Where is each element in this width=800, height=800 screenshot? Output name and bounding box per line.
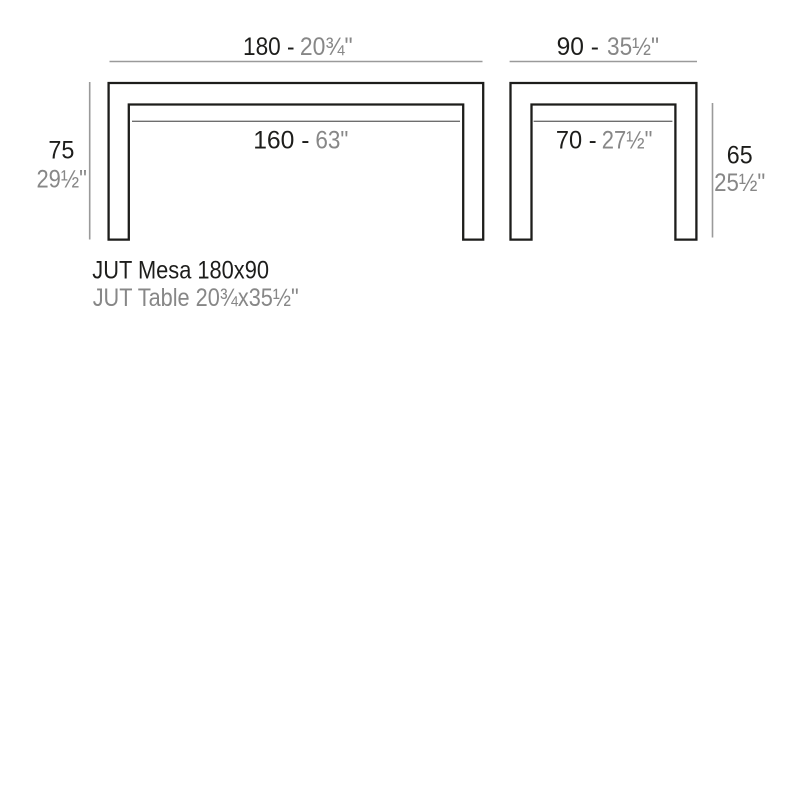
svg-text:160 -: 160 -: [253, 126, 309, 154]
svg-text:65: 65: [727, 141, 753, 169]
svg-text:27½": 27½": [602, 126, 653, 154]
svg-text:29½": 29½": [37, 165, 87, 193]
svg-text:75: 75: [48, 137, 74, 165]
svg-text:180 -: 180 -: [243, 33, 295, 61]
svg-text:63": 63": [315, 126, 348, 154]
svg-text:JUT Table 20¾x35½": JUT Table 20¾x35½": [93, 284, 299, 312]
svg-text:20¾": 20¾": [300, 33, 353, 61]
svg-text:70 -: 70 -: [556, 126, 597, 154]
svg-text:25½": 25½": [714, 169, 765, 197]
svg-text:JUT Mesa 180x90: JUT Mesa 180x90: [92, 257, 269, 285]
svg-text:35½": 35½": [607, 33, 659, 61]
svg-text:90 -: 90 -: [557, 33, 599, 61]
